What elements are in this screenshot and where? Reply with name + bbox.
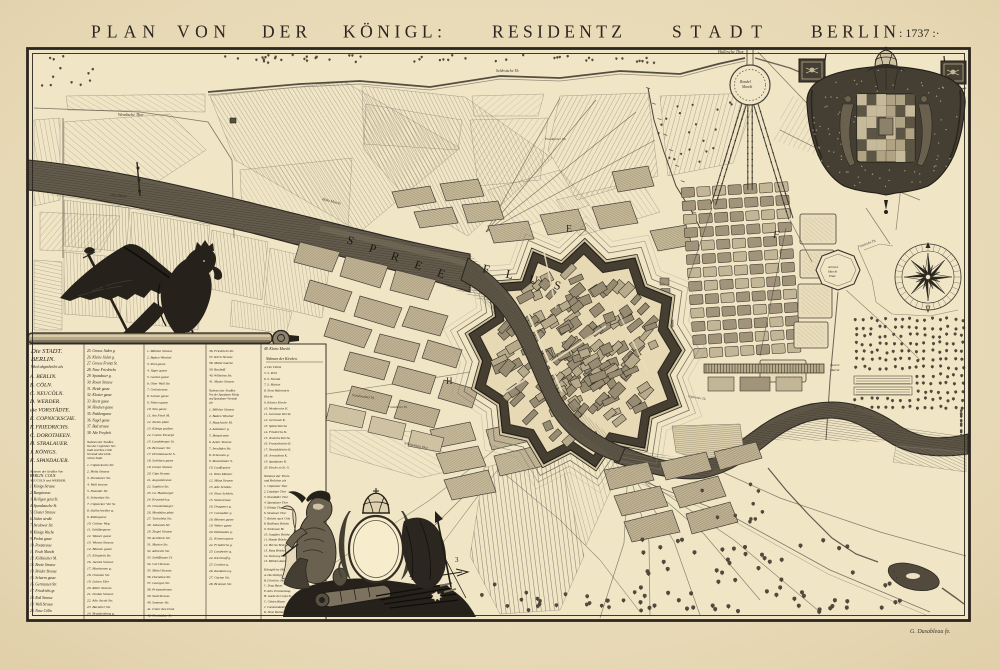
svg-text:D. WERDER.: D. WERDER. — [29, 399, 61, 405]
svg-text:40. Sommer Str.: 40. Sommer Str. — [147, 601, 169, 605]
svg-text:23. Gr. Hamburger: 23. Gr. Hamburger — [147, 491, 174, 495]
svg-text:4. Spandausche St.: 4. Spandausche St. — [30, 504, 57, 508]
svg-text:2. Baden Winckel: 2. Baden Winckel — [147, 355, 171, 359]
svg-text:20. Kirche zu St. G.: 20. Kirche zu St. G. — [264, 465, 290, 469]
svg-text:5. Closter Strasse: 5. Closter Strasse — [30, 511, 56, 515]
svg-text:12. Gertrauts K.: 12. Gertrauts K. — [264, 418, 286, 422]
svg-text:9. Rittergasse: 9. Rittergasse — [87, 515, 107, 519]
svg-text:Frankfurter Th.: Frankfurter Th. — [544, 137, 566, 141]
svg-text:32. Kloster gasse: 32. Kloster gasse — [87, 393, 112, 397]
svg-text:31. Heide gasse: 31. Heide gasse — [87, 387, 110, 391]
svg-text:19. Spandauer K.: 19. Spandauer K. — [264, 459, 287, 463]
svg-text:C. Güsten Hauss: C. Güsten Hauss — [264, 599, 286, 603]
svg-text:32. Albrecht Str.: 32. Albrecht Str. — [147, 549, 170, 553]
svg-text:11. Hunde Brücke: 11. Hunde Brücke — [264, 538, 287, 542]
svg-text:38. Prinzessinnen: 38. Prinzessinnen — [147, 588, 172, 592]
svg-text:15. Scharrn gasse: 15. Scharrn gasse — [30, 576, 56, 580]
svg-text:25. Grosse Jüden g.: 25. Grosse Jüden g. — [87, 349, 116, 353]
svg-text:26. Kastanien g.: 26. Kastanien g. — [209, 569, 232, 573]
svg-text:19. Luisen Ufer: 19. Luisen Ufer — [87, 579, 110, 583]
svg-text:4. Jäger gasse: 4. Jäger gasse — [147, 368, 168, 372]
svg-text:K. SPANDAUER.: K. SPANDAUER. — [29, 458, 69, 464]
svg-text:14. Neue Schönh.: 14. Neue Schönh. — [209, 491, 234, 495]
svg-text:1. Mühlen Strasse: 1. Mühlen Strasse — [209, 408, 235, 412]
svg-text:6. Acker Strasse: 6. Acker Strasse — [209, 440, 232, 444]
svg-text:27. Garten Str.: 27. Garten Str. — [209, 575, 230, 579]
svg-text:29. Ziegel Strasse: 29. Ziegel Strasse — [147, 530, 172, 534]
svg-text:F: F — [772, 229, 780, 241]
svg-text:25. Louisen g.: 25. Louisen g. — [209, 562, 229, 566]
svg-text:25. Oranienburger: 25. Oranienburger — [147, 504, 174, 508]
svg-text:16. Gertrauten Str.: 16. Gertrauten Str. — [30, 583, 57, 587]
svg-text:41. Mauer Strasse: 41. Mauer Strasse — [209, 380, 235, 384]
svg-text:28. Brunnen Str.: 28. Brunnen Str. — [209, 582, 232, 586]
svg-text:10. Grüner Weg: 10. Grüner Weg — [87, 521, 110, 525]
svg-text:Die STADT.: Die STADT. — [30, 348, 63, 355]
svg-text:26. Kleine Jüden g.: 26. Kleine Jüden g. — [87, 355, 115, 359]
svg-text:5. S. Petri: 5. S. Petri — [264, 371, 277, 375]
svg-text:9. Probst gasse: 9. Probst gasse — [30, 537, 52, 541]
svg-text:37. Bad strasse: 37. Bad strasse — [87, 425, 109, 429]
svg-text:11. Schäfergasse: 11. Schäfergasse — [87, 528, 111, 532]
svg-text:3: 3 — [455, 556, 459, 564]
svg-text:14. Friedrichs St.: 14. Friedrichs St. — [264, 430, 287, 434]
svg-text:3. Post gasse: 3. Post gasse — [147, 362, 166, 366]
svg-text:6. Ober Wall Str.: 6. Ober Wall Str. — [147, 381, 170, 385]
svg-text:3. Heiligen geist St.: 3. Heiligen geist St. — [30, 498, 58, 502]
svg-text:41. Unter den Lind.: 41. Unter den Lind. — [147, 607, 175, 611]
svg-text:8. Leinen gasse: 8. Leinen gasse — [147, 394, 169, 398]
svg-text:15. Teutsche Kirche: 15. Teutsche Kirche — [264, 436, 291, 440]
svg-text:17. Prentzlausche S.: 17. Prentzlausche S. — [147, 452, 176, 456]
svg-text:34. Carl Strasse: 34. Carl Strasse — [147, 562, 170, 566]
svg-text:10. Werdersche K.: 10. Werdersche K. — [264, 406, 288, 410]
svg-text:8. Stallschreiber g.: 8. Stallschreiber g. — [87, 508, 114, 512]
svg-text:18. Schützen gasse: 18. Schützen gasse — [147, 459, 174, 463]
svg-text:40. Wilhelms Str.: 40. Wilhelms Str. — [209, 373, 232, 377]
svg-text:4. Anklamer g.: 4. Anklamer g. — [209, 427, 230, 431]
svg-text:1. Mühlen Strasse: 1. Mühlen Strasse — [147, 349, 173, 353]
svg-text:30. Rosen Strasse: 30. Rosen Strasse — [87, 381, 113, 385]
svg-text:12. Herren Brücke: 12. Herren Brücke — [264, 543, 288, 547]
svg-text:14. Brüder Strasse: 14. Brüder Strasse — [30, 570, 57, 574]
svg-text:7. Cöpnicker Vor St.: 7. Cöpnicker Vor St. — [87, 502, 116, 506]
svg-text:6. Sebastian Str.: 6. Sebastian Str. — [87, 495, 110, 499]
svg-text:36. Friedrichs Str.: 36. Friedrichs Str. — [209, 349, 234, 353]
svg-text:10. Lauff gasse: 10. Lauff gasse — [209, 466, 231, 470]
svg-text:15. Landsberger St.: 15. Landsberger St. — [147, 439, 175, 443]
svg-text:2. Holtz Strasse: 2. Holtz Strasse — [87, 470, 110, 474]
svg-text:rethen Stadt.: rethen Stadt. — [87, 456, 103, 460]
svg-text:E: E — [566, 224, 572, 235]
svg-text:Platz: Platz — [828, 274, 836, 278]
svg-text:Quarre: Quarre — [830, 363, 840, 367]
svg-text:5. Königs Thor: 5. Königs Thor — [264, 506, 284, 510]
svg-text:Achteck: Achteck — [827, 265, 839, 269]
svg-text:12. Zieten platz: 12. Zieten platz — [147, 420, 169, 424]
svg-text:38. Alte Freyheit: 38. Alte Freyheit — [87, 431, 112, 435]
svg-text:Rondel: Rondel — [739, 80, 751, 84]
svg-text:39. Banhoff: 39. Banhoff — [209, 367, 226, 371]
svg-text:8. Rathhaus Brücke: 8. Rathhaus Brücke — [264, 522, 290, 526]
svg-text:7. Brücke nach Cöln: 7. Brücke nach Cöln — [264, 516, 291, 520]
svg-text:12. Münz Strasse: 12. Münz Strasse — [209, 479, 233, 483]
svg-text:8. Königs Wache: 8. Königs Wache — [30, 530, 55, 534]
svg-text:B. CÖLN.: B. CÖLN. — [30, 380, 52, 388]
svg-text:2. Burgstrasse: 2. Burgstrasse — [30, 491, 51, 495]
svg-text:12. Wasser gasse: 12. Wasser gasse — [87, 534, 112, 538]
svg-text:PLAN: PLAN — [91, 22, 155, 42]
svg-text:48. Kleine Marckt: 48. Kleine Marckt — [264, 347, 291, 351]
svg-text:28. Johannis Str.: 28. Johannis Str. — [147, 523, 170, 527]
svg-text:F. FRIEDRICHS.: F. FRIEDRICHS. — [29, 424, 69, 430]
svg-text:7. Grünstrasse: 7. Grünstrasse — [147, 388, 168, 392]
svg-text:17. Mariannen g.: 17. Mariannen g. — [87, 566, 112, 570]
svg-text:4. Der Dohm: 4. Der Dohm — [264, 365, 282, 369]
svg-text:Marckt: Marckt — [829, 368, 839, 372]
svg-text:23. Landwehr g.: 23. Landwehr g. — [209, 550, 232, 554]
svg-text:11. Garnison Kirche: 11. Garnison Kirche — [264, 412, 291, 416]
svg-text:Schlesische Th.: Schlesische Th. — [496, 69, 519, 73]
svg-text:6. S. Nicolai: 6. S. Nicolai — [264, 377, 280, 381]
svg-text:Frankfurter Pl.: Frankfurter Pl. — [387, 405, 408, 409]
svg-text:BERLIN. COLN.: BERLIN. COLN. — [30, 474, 56, 478]
svg-text:10. Poststrasse: 10. Poststrasse — [30, 543, 52, 547]
svg-text:10. Neu gasse: 10. Neu gasse — [147, 407, 167, 411]
svg-text:34. Hincken gasse: 34. Hincken gasse — [87, 406, 114, 410]
svg-text:3. Dresdener Str.: 3. Dresdener Str. — [87, 476, 111, 480]
svg-text:Nahmen der Kirchen.: Nahmen der Kirchen. — [265, 357, 298, 361]
svg-text:13. Königs graben: 13. Königs graben — [147, 426, 173, 430]
svg-text:VON: VON — [177, 22, 226, 42]
svg-text:35. Paddengasse: 35. Paddengasse — [87, 412, 112, 416]
svg-text:23. Baruther Str.: 23. Baruther Str. — [87, 605, 111, 609]
svg-text:8. Scheunen g.: 8. Scheunen g. — [209, 453, 230, 457]
svg-text:13. Breite Strasse: 13. Breite Strasse — [30, 563, 56, 567]
svg-text:5. Neander Str.: 5. Neander Str. — [87, 489, 108, 493]
svg-text:10. Jungfern Brücke: 10. Jungfern Brücke — [264, 532, 291, 536]
svg-text:21. Kronen gasse: 21. Kronen gasse — [209, 537, 234, 541]
svg-text:17. Neustädtische K.: 17. Neustädtische K. — [264, 448, 291, 452]
svg-text:17. Friedrichs gr.: 17. Friedrichs gr. — [30, 589, 55, 593]
svg-text:39. Stall Strasse: 39. Stall Strasse — [147, 594, 170, 598]
svg-text:22. Alte Jacob Str.: 22. Alte Jacob Str. — [87, 599, 113, 603]
svg-text:16. Frantzösische K.: 16. Frantzösische K. — [264, 442, 291, 446]
svg-text:11. Fisch Marckt: 11. Fisch Marckt — [30, 550, 55, 554]
svg-text:24. Brandenburg g.: 24. Brandenburg g. — [87, 612, 115, 616]
svg-text:die VORSTÄDTE.: die VORSTÄDTE. — [30, 407, 70, 414]
svg-text:18. Roß Strasse: 18. Roß Strasse — [30, 596, 53, 600]
svg-text:13. Wiesen Strasse: 13. Wiesen Strasse — [87, 541, 114, 545]
svg-text:21. Auguststrasse: 21. Auguststrasse — [147, 478, 172, 482]
svg-text:G. Dusableau fe.: G. Dusableau fe. — [910, 628, 951, 635]
svg-text:20. Gips Strasse: 20. Gips Strasse — [147, 472, 170, 476]
svg-text:31. Marien Str.: 31. Marien Str. — [147, 543, 168, 547]
svg-text:27. Grosse Frantz St.: 27. Grosse Frantz St. — [87, 362, 118, 366]
svg-text:DER: DER — [262, 22, 307, 42]
svg-text:20. Neue Cölln: 20. Neue Cölln — [30, 609, 52, 613]
svg-text:H. STRALAUER.: H. STRALAUER. — [29, 441, 68, 447]
svg-text:C. Zeug Hauss: C. Zeug Hauss — [264, 584, 283, 588]
svg-text:Nahmen der Straßen Von: Nahmen der Straßen Von — [29, 469, 63, 473]
svg-text:3. Haacksche M.: 3. Haacksche M. — [209, 421, 233, 425]
svg-text:: 1737 :·: : 1737 :· — [899, 26, 940, 40]
svg-text:Kirche: Kirche — [263, 395, 273, 399]
svg-text:6. Stralauer Thor: 6. Stralauer Thor — [264, 511, 287, 515]
svg-text:36. Dorothea Str.: 36. Dorothea Str. — [147, 575, 171, 579]
svg-text:19. Weber gasse: 19. Weber gasse — [209, 524, 232, 528]
svg-text:30. Artillerie Str.: 30. Artillerie Str. — [147, 536, 171, 540]
svg-text:Marckt: Marckt — [741, 85, 753, 89]
svg-text:C. DOROTHEEN.: C. DOROTHEEN. — [30, 433, 71, 439]
svg-text:37. Kirch Strasse: 37. Kirch Strasse — [209, 355, 233, 359]
svg-text:16. Bernauer Str.: 16. Bernauer Str. — [147, 446, 171, 450]
svg-text:28. Neue Friedrichs: 28. Neue Friedrichs — [87, 368, 116, 372]
svg-text:5. Bergstrasse: 5. Bergstrasse — [209, 433, 229, 437]
svg-text:19. Linien Strasse: 19. Linien Strasse — [147, 465, 173, 469]
svg-text:9. Schleusen Br.: 9. Schleusen Br. — [264, 527, 285, 531]
svg-text:NEUCOLN und WERDER.: NEUCOLN und WERDER. — [29, 478, 66, 482]
svg-text:22. Friedrichs g.: 22. Friedrichs g. — [209, 543, 233, 547]
svg-text:Nahmen der Thore: Nahmen der Thore — [263, 474, 290, 478]
svg-text:Wendische Thor: Wendische Thor — [118, 112, 144, 117]
svg-text:29. Spandauer g.: 29. Spandauer g. — [87, 374, 112, 378]
svg-text:Wird abgetheilet als: Wird abgetheilet als — [31, 364, 64, 369]
svg-text:8. Neue Reformirte: 8. Neue Reformirte — [264, 389, 290, 393]
svg-text:2. Baden Winckel: 2. Baden Winckel — [209, 414, 233, 418]
svg-text:1. Cöpnicker Thor: 1. Cöpnicker Thor — [264, 484, 288, 488]
svg-text:BERLIN.: BERLIN. — [31, 356, 55, 363]
svg-text:9. Kloster Kirche: 9. Kloster Kirche — [264, 400, 287, 404]
svg-text:E. COPNICKSCHE.: E. COPNICKSCHE. — [29, 416, 76, 422]
svg-text:1. Königs Strasse: 1. Königs Strasse — [30, 484, 55, 488]
svg-text:18. Oranien Str.: 18. Oranien Str. — [87, 573, 110, 577]
svg-text:17. Grenadier g.: 17. Grenadier g. — [209, 511, 232, 515]
svg-text:3. Neustädter Thor: 3. Neustädter Thor — [264, 495, 289, 499]
svg-text:13. Burg Brücke: 13. Burg Brücke — [264, 548, 285, 552]
svg-text:24. Kirchhoff g.: 24. Kirchhoff g. — [209, 556, 231, 560]
svg-text:7. Invaliden Str.: 7. Invaliden Str. — [209, 446, 231, 450]
svg-text:und Brücken als: und Brücken als — [264, 479, 287, 483]
svg-text:20. Pallisaden g.: 20. Pallisaden g. — [209, 530, 233, 534]
svg-text:und Spandauer Vorstadt: und Spandauer Vorstadt — [209, 397, 237, 401]
svg-text:37. Georgen Str.: 37. Georgen Str. — [147, 581, 170, 585]
svg-text:E. Kön. Proviantmag.: E. Kön. Proviantmag. — [263, 589, 291, 593]
svg-text:24. Krausnick g.: 24. Krausnick g. — [147, 497, 170, 501]
svg-text:12. Köllnischer M.: 12. Köllnischer M. — [30, 556, 57, 560]
svg-text:14. Contre Escarpe: 14. Contre Escarpe — [147, 433, 175, 437]
svg-text:9. Neben gasse: 9. Neben gasse — [147, 401, 169, 405]
svg-text:21. Linden Strasse: 21. Linden Strasse — [87, 592, 114, 596]
svg-text:16. Jacobs Strasse: 16. Jacobs Strasse — [87, 560, 114, 564]
svg-text:18. Jerusalems K.: 18. Jerusalems K. — [264, 454, 288, 458]
svg-text:RESIDENTZ: RESIDENTZ — [492, 22, 622, 42]
svg-text:A. BERLIN.: A. BERLIN. — [29, 374, 57, 380]
svg-text:33. Reetz gasse: 33. Reetz gasse — [87, 399, 109, 403]
svg-text:26. Monbijou platz: 26. Monbijou platz — [147, 510, 174, 514]
svg-text:J. KÖNIGS.: J. KÖNIGS. — [30, 448, 57, 456]
svg-text:5. Garten gasse: 5. Garten gasse — [147, 375, 170, 379]
svg-text:1. Cöpnicksche Str.: 1. Cöpnicksche Str. — [87, 463, 114, 467]
svg-text:16. Dragoner g.: 16. Dragoner g. — [209, 504, 232, 508]
svg-text:H. Garde du Corps St.: H. Garde du Corps St. — [263, 594, 292, 598]
svg-text:15. Steinstrasse: 15. Steinstrasse — [209, 498, 231, 502]
svg-text:9. Rosenthaler S.: 9. Rosenthaler S. — [209, 459, 233, 463]
svg-text:15. Mühlen damm: 15. Mühlen damm — [264, 559, 288, 563]
svg-text:C. NEUCÖLN.: C. NEUCÖLN. — [30, 389, 64, 397]
svg-text:2. Leipziger Thor: 2. Leipziger Thor — [264, 490, 287, 494]
svg-text:Marckt: Marckt — [827, 270, 837, 274]
svg-text:7. S. Marien: 7. S. Marien — [264, 383, 281, 387]
svg-text:7. Stralower Str.: 7. Stralower Str. — [30, 524, 53, 528]
svg-text:H: H — [446, 376, 453, 386]
svg-text:19. Wall Strasse: 19. Wall Strasse — [30, 602, 54, 606]
svg-text:4. Wall strasse: 4. Wall strasse — [87, 483, 108, 487]
svg-text:20. Ritter Strasse: 20. Ritter Strasse — [87, 586, 112, 590]
svg-text:35. Mittel Strasse: 35. Mittel Strasse — [147, 568, 172, 572]
svg-text:27. Tucholsky Str.: 27. Tucholsky Str. — [147, 517, 172, 521]
svg-text:11. Wein Meister: 11. Wein Meister — [209, 472, 233, 476]
svg-text:4. Spandauer Thor: 4. Spandauer Thor — [264, 500, 289, 504]
svg-text:6. Jüden straße: 6. Jüden straße — [30, 517, 52, 521]
svg-text:18. Blumen gasse: 18. Blumen gasse — [209, 517, 234, 521]
svg-text:14. Blumen gasse: 14. Blumen gasse — [87, 547, 112, 551]
svg-text:22. Sophien Str.: 22. Sophien Str. — [147, 484, 169, 488]
svg-text:11. Am Fisch M.: 11. Am Fisch M. — [147, 414, 170, 418]
svg-text:33. Schiffbauer D.: 33. Schiffbauer D. — [147, 555, 173, 559]
svg-text:13. Spittel Kirche: 13. Spittel Kirche — [264, 424, 288, 428]
svg-text:13. Alte Schönh.: 13. Alte Schönh. — [209, 485, 232, 489]
svg-text:36. Nagel gasse: 36. Nagel gasse — [87, 418, 110, 422]
svg-text:38. Mittel marckt: 38. Mittel marckt — [209, 361, 234, 365]
svg-text:15. Elisabeth Str.: 15. Elisabeth Str. — [87, 554, 111, 558]
